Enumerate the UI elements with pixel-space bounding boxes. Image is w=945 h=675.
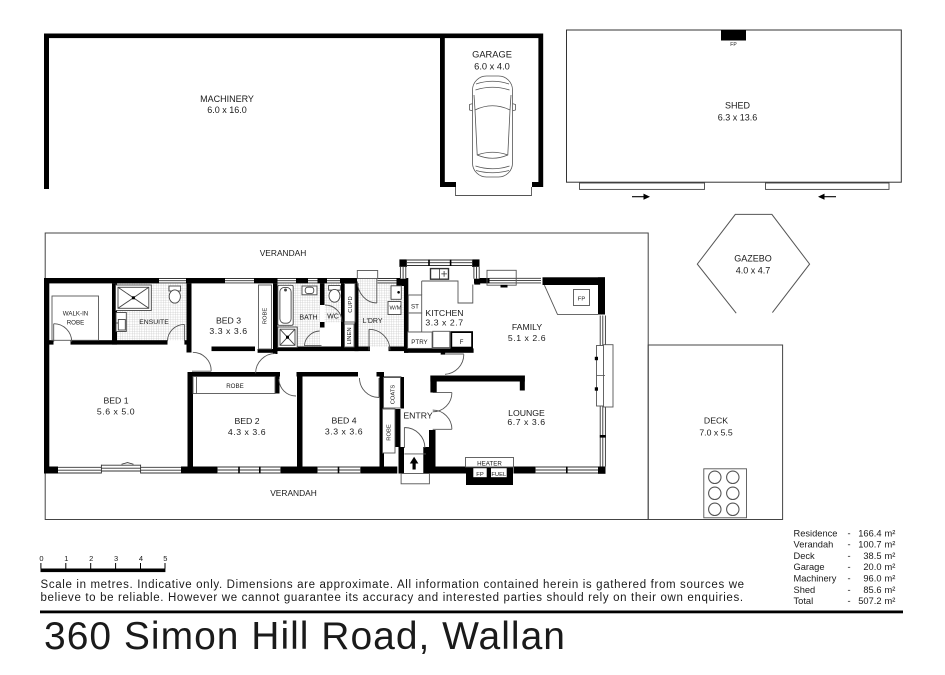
svg-text:7.0 x 5.5: 7.0 x 5.5 <box>699 428 732 438</box>
svg-text:3.3 x 2.7: 3.3 x 2.7 <box>425 318 463 328</box>
svg-text:FAMILY: FAMILY <box>512 322 542 332</box>
svg-text:Scale in metres. Indicative on: Scale in metres. Indicative only. Dimens… <box>41 579 745 591</box>
svg-text:BATH: BATH <box>299 315 317 322</box>
svg-text:507.2: 507.2 <box>858 596 881 606</box>
svg-text:m²: m² <box>885 596 896 606</box>
svg-text:4.3 x 3.6: 4.3 x 3.6 <box>228 427 266 437</box>
svg-text:ENTRY: ENTRY <box>403 411 432 421</box>
svg-text:FUEL: FUEL <box>491 472 507 478</box>
svg-text:m²: m² <box>885 574 896 584</box>
svg-text:believe to be reliable. Howeve: believe to be reliable. However we canno… <box>41 592 744 604</box>
svg-text:BED 1: BED 1 <box>103 396 128 406</box>
svg-text:-: - <box>847 585 850 595</box>
svg-text:2: 2 <box>89 554 93 563</box>
svg-text:FP: FP <box>730 42 737 48</box>
svg-text:COATS: COATS <box>391 385 397 405</box>
svg-text:1: 1 <box>64 554 68 563</box>
svg-text:-: - <box>847 574 850 584</box>
svg-text:38.5: 38.5 <box>863 551 881 561</box>
svg-text:VERANDAH: VERANDAH <box>260 248 307 258</box>
svg-text:360 Simon Hill Road, Wallan: 360 Simon Hill Road, Wallan <box>44 615 566 658</box>
svg-text:m²: m² <box>885 551 896 561</box>
svg-text:LINEN: LINEN <box>347 327 353 344</box>
svg-text:F: F <box>460 339 464 346</box>
svg-text:ENSUITE: ENSUITE <box>139 319 169 326</box>
svg-text:CUPD: CUPD <box>348 296 354 312</box>
svg-text:BED 4: BED 4 <box>331 416 356 426</box>
svg-text:ROBE: ROBE <box>67 320 85 327</box>
svg-text:m²: m² <box>885 540 896 550</box>
svg-text:VERANDAH: VERANDAH <box>270 488 317 498</box>
svg-text:Total: Total <box>794 596 814 606</box>
svg-text:Deck: Deck <box>794 551 816 561</box>
svg-text:GARAGE: GARAGE <box>472 50 512 60</box>
svg-text:3: 3 <box>114 554 118 563</box>
svg-text:85.6: 85.6 <box>863 585 881 595</box>
svg-text:3.3 x 3.6: 3.3 x 3.6 <box>325 427 363 437</box>
svg-text:ROBE: ROBE <box>263 308 269 325</box>
svg-text:5.1 x 2.6: 5.1 x 2.6 <box>508 333 546 343</box>
svg-text:-: - <box>847 562 850 572</box>
svg-text:FP: FP <box>476 472 484 478</box>
svg-text:GAZEBO: GAZEBO <box>734 254 772 264</box>
svg-text:m²: m² <box>885 562 896 572</box>
svg-text:MACHINERY: MACHINERY <box>200 94 254 104</box>
svg-text:Shed: Shed <box>794 585 816 595</box>
svg-text:m²: m² <box>885 585 896 595</box>
svg-text:5.6 x 5.0: 5.6 x 5.0 <box>97 407 135 417</box>
svg-text:0: 0 <box>39 554 43 563</box>
svg-text:HEATER: HEATER <box>477 460 502 467</box>
svg-text:Verandah: Verandah <box>794 540 834 550</box>
svg-text:6.0 x 16.0: 6.0 x 16.0 <box>207 105 247 115</box>
svg-text:Machinery: Machinery <box>794 574 837 584</box>
svg-text:6.3 x 13.6: 6.3 x 13.6 <box>718 113 758 123</box>
svg-text:WC: WC <box>327 314 339 321</box>
svg-text:PTRY: PTRY <box>411 339 427 346</box>
svg-text:ST: ST <box>411 304 419 311</box>
svg-text:5: 5 <box>163 554 167 563</box>
svg-text:100.7: 100.7 <box>858 540 881 550</box>
svg-text:96.0: 96.0 <box>863 574 881 584</box>
svg-text:ROBE: ROBE <box>387 424 393 441</box>
svg-text:6.7 x 3.6: 6.7 x 3.6 <box>507 417 545 427</box>
svg-text:BED 2: BED 2 <box>234 416 259 426</box>
svg-text:m²: m² <box>885 528 896 538</box>
svg-text:-: - <box>847 540 850 550</box>
svg-text:Garage: Garage <box>794 562 825 572</box>
svg-text:166.4: 166.4 <box>858 528 881 538</box>
svg-text:SHED: SHED <box>725 101 751 111</box>
svg-text:L'DRY: L'DRY <box>363 318 383 325</box>
svg-text:KITCHEN: KITCHEN <box>425 308 463 318</box>
svg-text:WALK-IN: WALK-IN <box>63 310 89 317</box>
svg-text:Residence: Residence <box>794 528 838 538</box>
svg-text:ROBE: ROBE <box>226 383 244 390</box>
svg-text:FP: FP <box>578 297 586 303</box>
svg-text:4: 4 <box>139 554 143 563</box>
svg-text:6.0 x 4.0: 6.0 x 4.0 <box>474 62 510 72</box>
svg-text:BED 3: BED 3 <box>216 316 241 326</box>
svg-text:20.0: 20.0 <box>863 562 881 572</box>
svg-text:DECK: DECK <box>704 416 728 426</box>
svg-text:-: - <box>847 528 850 538</box>
svg-text:3.3 x 3.6: 3.3 x 3.6 <box>209 326 247 336</box>
svg-text:-: - <box>847 551 850 561</box>
svg-text:W/M: W/M <box>390 306 402 312</box>
svg-text:-: - <box>847 596 850 606</box>
svg-text:4.0 x 4.7: 4.0 x 4.7 <box>736 266 771 276</box>
